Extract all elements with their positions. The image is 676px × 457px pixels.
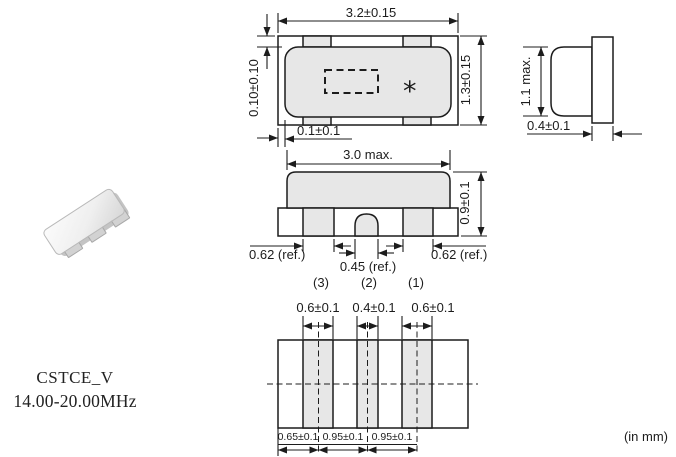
- pad-width-left-label: 0.6±0.1: [296, 300, 339, 315]
- pad-pitch-right-label: 0.95±0.1: [372, 431, 413, 443]
- cap-width-label: 3.0 max.: [343, 147, 393, 162]
- pad-width-center-label: 0.4±0.1: [352, 300, 395, 315]
- part-series: CSTCE_V: [0, 368, 150, 388]
- front-height-label: 0.9±0.1: [457, 181, 472, 224]
- top-view: * 3.2±0.15 1.3±0.15 0.10±0.10: [246, 5, 487, 147]
- cap-offset-left-label: 0.1±0.1: [297, 123, 340, 138]
- top-view-ceramic-cap: [285, 47, 451, 117]
- side-view-substrate: [592, 37, 613, 123]
- substrate-thickness-label: 0.4±0.1: [527, 118, 570, 133]
- pad-width-right-label: 0.6±0.1: [411, 300, 454, 315]
- pad-left-label: 0.62 (ref.): [249, 247, 305, 262]
- terminal-3-label: (3): [313, 275, 329, 290]
- top-height-label: 1.3±0.15: [458, 55, 473, 106]
- front-terminal-1-pad: [403, 208, 433, 236]
- pad-pitch-center-label: 0.95±0.1: [323, 431, 364, 443]
- cap-offset-top-label: 0.10±0.10: [246, 59, 261, 117]
- front-terminal-3-pad: [303, 208, 334, 236]
- pad-center-dimension: [339, 239, 394, 259]
- component-photo-body: [42, 186, 131, 260]
- side-view-cap: [551, 47, 592, 116]
- front-view-cap: [287, 172, 450, 208]
- front-view: 3.0 max. 0.9±0.1 0.62 (ref.): [249, 147, 487, 290]
- polarity-marking: *: [403, 76, 417, 107]
- side-height-label: 1.1 max.: [518, 57, 533, 107]
- front-terminal-2-dome: [355, 214, 378, 236]
- datasheet-dimensions-figure: * 3.2±0.15 1.3±0.15 0.10±0.10: [0, 0, 676, 457]
- side-view: 1.1 max. 0.4±0.1: [518, 37, 642, 141]
- part-frequency-range: 14.00-20.00MHz: [0, 391, 150, 412]
- pad-center-label: 0.45 (ref.): [340, 259, 396, 274]
- pad-pitch-left-label: 0.65±0.1: [278, 431, 319, 443]
- top-width-label: 3.2±0.15: [346, 5, 397, 20]
- units-note: (in mm): [624, 429, 668, 444]
- part-label: CSTCE_V 14.00-20.00MHz: [0, 368, 150, 412]
- pad-right-label: 0.62 (ref.): [431, 247, 487, 262]
- terminal-1-label: (1): [408, 275, 424, 290]
- terminal-2-label: (2): [361, 275, 377, 290]
- component-photo: [36, 192, 136, 258]
- land-pattern-view: 0.6±0.1 0.4±0.1 0.6±0.1 0.65±0.1 0.95±0.…: [267, 300, 478, 456]
